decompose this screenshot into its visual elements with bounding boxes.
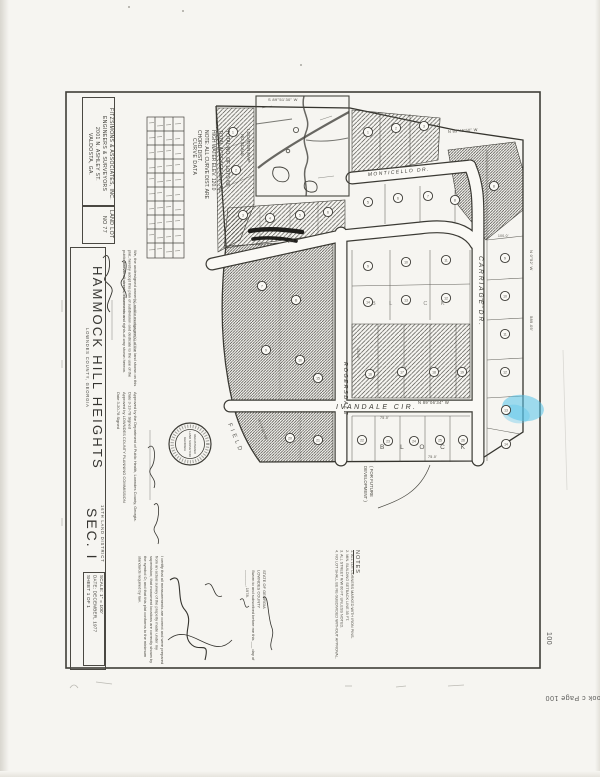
street-label-carriage: CARRIAGE DR. xyxy=(477,256,484,327)
lot-number: 5 xyxy=(299,213,301,217)
dimension-label: 140.0' xyxy=(356,348,360,359)
lot-number: 2 xyxy=(395,126,397,130)
surveyor-certification: I certify that all measurements are corr… xyxy=(141,556,165,668)
seal-text-3: GEORGIA xyxy=(183,437,187,451)
lot-number: 23 xyxy=(386,439,390,443)
lot-number: 9 xyxy=(367,264,369,268)
lot-number: 12 xyxy=(444,296,448,300)
block-letters-2: B L O C K xyxy=(372,301,451,307)
lot-number: 3 xyxy=(242,213,244,217)
page-stamp-bottom: look c Page 100 xyxy=(542,694,600,701)
plat-scale: SCALE: 1" = 100' xyxy=(98,575,104,667)
firm-line: VALDOSTA, GA. xyxy=(86,100,93,208)
lot-number: 12 xyxy=(503,370,507,374)
street-label-rogersdale: ROGERSDALE xyxy=(342,362,348,416)
planning-approval: Approved by LOWNDES COUNTY PLANNING COMM… xyxy=(121,392,127,522)
lot-number: 20 xyxy=(288,436,292,440)
seal-text-2: LAND SURVEYOR xyxy=(188,431,192,457)
lot-number: 7 xyxy=(261,284,263,288)
lot-number: 21 xyxy=(316,438,320,442)
lot-number: 25 xyxy=(438,438,442,442)
lot-number: 2 xyxy=(235,168,237,172)
lot-number: 22 xyxy=(360,438,364,442)
lot-number: 10 xyxy=(404,260,408,264)
dimension-label: 100.0' xyxy=(498,234,509,238)
location-map-title: LOCATION MAP xyxy=(245,110,251,180)
firm-line: FITZSIMONS & ASSOCIATES, INC. xyxy=(107,100,114,208)
lot-number: 8 xyxy=(454,198,456,202)
notary-county: LOWNDES COUNTY xyxy=(256,570,262,666)
future-development-note: ( FOR FUTURE DEVELOPMENT ) xyxy=(350,466,374,592)
lot-number: 17 xyxy=(400,370,404,374)
dimension-label: 589.05' xyxy=(529,316,534,331)
lot-number: 13 xyxy=(404,298,408,302)
lot-number: 9 xyxy=(265,348,267,352)
dimension-label: N 0°52' W xyxy=(529,250,534,271)
totals-line: NOTE: ALL CURVE DIST. ARE xyxy=(202,130,209,302)
plat-section: SEC. I xyxy=(84,486,100,582)
curve-data-table xyxy=(147,117,184,258)
location-map-inset xyxy=(256,96,349,196)
totals-note: TOTAL NO. OF LOTS 63 TOTAL ACREAGE 19± A… xyxy=(192,130,230,302)
lot-number: 14 xyxy=(504,442,508,446)
dimension-label: S 89°51'30" W xyxy=(268,97,298,102)
firm-box: FITZSIMONS & ASSOCIATES, INC. ENGINEERS … xyxy=(82,97,115,207)
health-planning-approvals: Approved by the Department of Public Hea… xyxy=(100,392,138,522)
lot-number: 10 xyxy=(298,358,302,362)
lot-number: 19 xyxy=(460,370,464,374)
lot-number: 5 xyxy=(367,200,369,204)
lot-number: 16 xyxy=(368,372,372,376)
totals-line: TOTAL ACREAGE 19± AC. xyxy=(216,130,223,302)
scale-date-box: SCALE: 1" = 100' DATE: DECEMBER, 1977 SH… xyxy=(83,572,105,666)
firm-line: 2001 N. ASHLEY ST. xyxy=(93,100,100,208)
dimension-label: N 89°06'34" W xyxy=(418,400,449,405)
lot-number: 14 xyxy=(366,300,370,304)
lot-number: 15 xyxy=(316,376,320,380)
location-map-label: LOCATION MAP NO SCALE xyxy=(238,110,251,180)
seal-text-1: REGISTERED xyxy=(193,434,197,454)
notary-state: STATE OF GEORGIA xyxy=(261,570,267,666)
lot-number: 9 xyxy=(504,256,506,260)
dimension-label: 150.0' xyxy=(481,298,485,309)
lot-number: 24 xyxy=(412,439,416,443)
plat-date: DATE: DECEMBER, 1977 xyxy=(91,575,97,667)
lot-number: 7 xyxy=(427,194,429,198)
scanned-plat-page: { "page": { "stamp_bottom": "look c Page… xyxy=(0,0,600,777)
lot-number: 4 xyxy=(269,216,271,220)
notes-item: 3. ALL STREET R/W 60 FT. UNLESS NOTED. xyxy=(338,550,343,659)
curve-table-title: CURVE DATA xyxy=(186,138,197,202)
no-scale-label: NO SCALE xyxy=(239,110,245,180)
notes-item: 2. MIN. BUILDING SETBACK LINE 35 FT. xyxy=(344,550,349,659)
lot-number: 6 xyxy=(327,210,329,214)
land-lot-box: LAND LOT NO 77 xyxy=(82,205,115,244)
lot-number: 11 xyxy=(444,258,448,262)
totals-line: HIGH WATER ELEV. 120.0 xyxy=(209,130,216,302)
dimension-label: 75.0' xyxy=(428,455,437,459)
leader-line xyxy=(378,465,430,508)
lot-number: 10 xyxy=(503,294,507,298)
surveyor-seal: REGISTERED LAND SURVEYOR GEORGIA xyxy=(169,423,211,465)
lot-number: 8 xyxy=(295,298,297,302)
lot-number: 26 xyxy=(461,438,465,442)
land-lot-label: LAND LOT NO 77 xyxy=(83,206,114,243)
lot-number: 11 xyxy=(503,332,507,336)
lot-number: 1 xyxy=(232,130,234,134)
notary-line: Sworn to and subscribed before me this _… xyxy=(245,570,256,666)
totals-line: TOTAL NO. OF LOTS 63 xyxy=(223,130,230,302)
firm-line: ENGINEERS & SURVEYORS xyxy=(100,100,107,208)
owner-certification: We, the undersigned owner(s) and/or mort… xyxy=(100,250,138,388)
lot-number: 1 xyxy=(367,130,369,134)
notary-block: STATE OF GEORGIA LOWNDES COUNTY Sworn to… xyxy=(247,570,267,666)
lot-number: 18 xyxy=(432,370,436,374)
notes-item: 4. NO LOT SHALL BE RE-SUBDIVIDED WITHOUT… xyxy=(333,550,338,659)
block-letters-1: B L O C K xyxy=(380,444,472,451)
lot-number: 6 xyxy=(397,196,399,200)
lot-number: 8 xyxy=(493,184,495,188)
health-approval: Approved by the Department of Public Hea… xyxy=(132,392,138,522)
dimension-label: 75.0' xyxy=(380,416,389,420)
lot-number: 3 xyxy=(423,124,425,128)
future-dev-line: ( FOR FUTURE xyxy=(368,466,374,592)
lot-number: 13 xyxy=(504,408,508,412)
future-dev-line: DEVELOPMENT ) xyxy=(362,466,368,592)
page-stamp-side: 100 xyxy=(540,632,552,666)
